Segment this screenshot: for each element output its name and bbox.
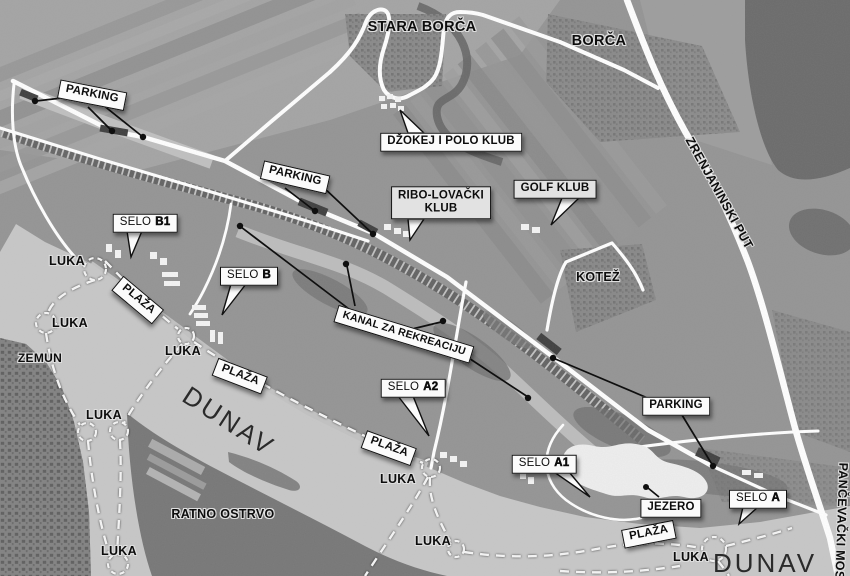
label-parking-3: PARKING <box>642 397 710 416</box>
selo-id-a1: A1 <box>554 457 569 469</box>
parking-dot <box>370 231 376 237</box>
label-pancevacki-most: PANČEVAČKI MOST <box>833 462 850 576</box>
parking-dot <box>109 128 115 134</box>
label-ratno-ostrvo: RATNO OSTRVO <box>171 508 274 521</box>
parking-dot <box>32 98 38 104</box>
map-canvas: STARA BORČA BORČA ZRENJANINSKI PUT KOTEŽ… <box>0 0 850 576</box>
label-selo-a2: SELOA2 <box>381 379 446 398</box>
canal-dot <box>525 395 531 401</box>
ribo-lovacki-line2: KLUB <box>398 203 484 216</box>
label-dunav-east: DUNAV <box>713 550 817 576</box>
label-selo-a1: SELOA1 <box>512 455 577 474</box>
parking-dot <box>312 208 318 214</box>
selo-prefix: SELO <box>519 457 550 469</box>
label-dzokej-i-polo-klub: DŽOKEJ I POLO KLUB <box>380 133 522 152</box>
label-selo-a: SELOA <box>729 490 787 509</box>
label-kotez: KOTEŽ <box>576 271 620 284</box>
selo-prefix: SELO <box>120 216 151 228</box>
label-luka-6: LUKA <box>380 473 416 486</box>
selo-prefix: SELO <box>736 492 767 504</box>
label-zemun: ZEMUN <box>18 352 62 364</box>
selo-prefix: SELO <box>388 381 419 393</box>
label-luka-8: LUKA <box>673 551 709 564</box>
canal-dot <box>237 223 243 229</box>
label-ribo-lovacki-klub: RIBO-LOVAČKI KLUB <box>391 186 491 219</box>
label-luka-3: LUKA <box>165 345 201 358</box>
label-stara-borca: STARA BORČA <box>368 20 477 35</box>
selo-id-a2: A2 <box>423 381 438 393</box>
label-selo-b1: SELOB1 <box>113 214 178 233</box>
label-luka-5: LUKA <box>101 545 137 558</box>
label-luka-1: LUKA <box>49 255 85 268</box>
label-luka-7: LUKA <box>415 535 451 548</box>
canal-dot <box>343 261 349 267</box>
label-golf-klub: GOLF KLUB <box>514 180 597 199</box>
canal-dot <box>440 318 446 324</box>
selo-id-b1: B1 <box>155 216 170 228</box>
parking-dot <box>140 134 146 140</box>
parking-dot <box>550 355 556 361</box>
jezero-dot <box>643 484 649 490</box>
selo-id-a: A <box>771 492 780 504</box>
label-borca: BORČA <box>572 34 627 49</box>
label-luka-4: LUKA <box>86 409 122 422</box>
parking-dot <box>710 463 716 469</box>
label-selo-b: SELOB <box>220 267 278 286</box>
selo-id-b: B <box>262 269 271 281</box>
label-jezero: JEZERO <box>640 499 701 518</box>
label-luka-2: LUKA <box>52 317 88 330</box>
ribo-lovacki-line1: RIBO-LOVAČKI <box>398 189 484 202</box>
selo-prefix: SELO <box>227 269 258 281</box>
